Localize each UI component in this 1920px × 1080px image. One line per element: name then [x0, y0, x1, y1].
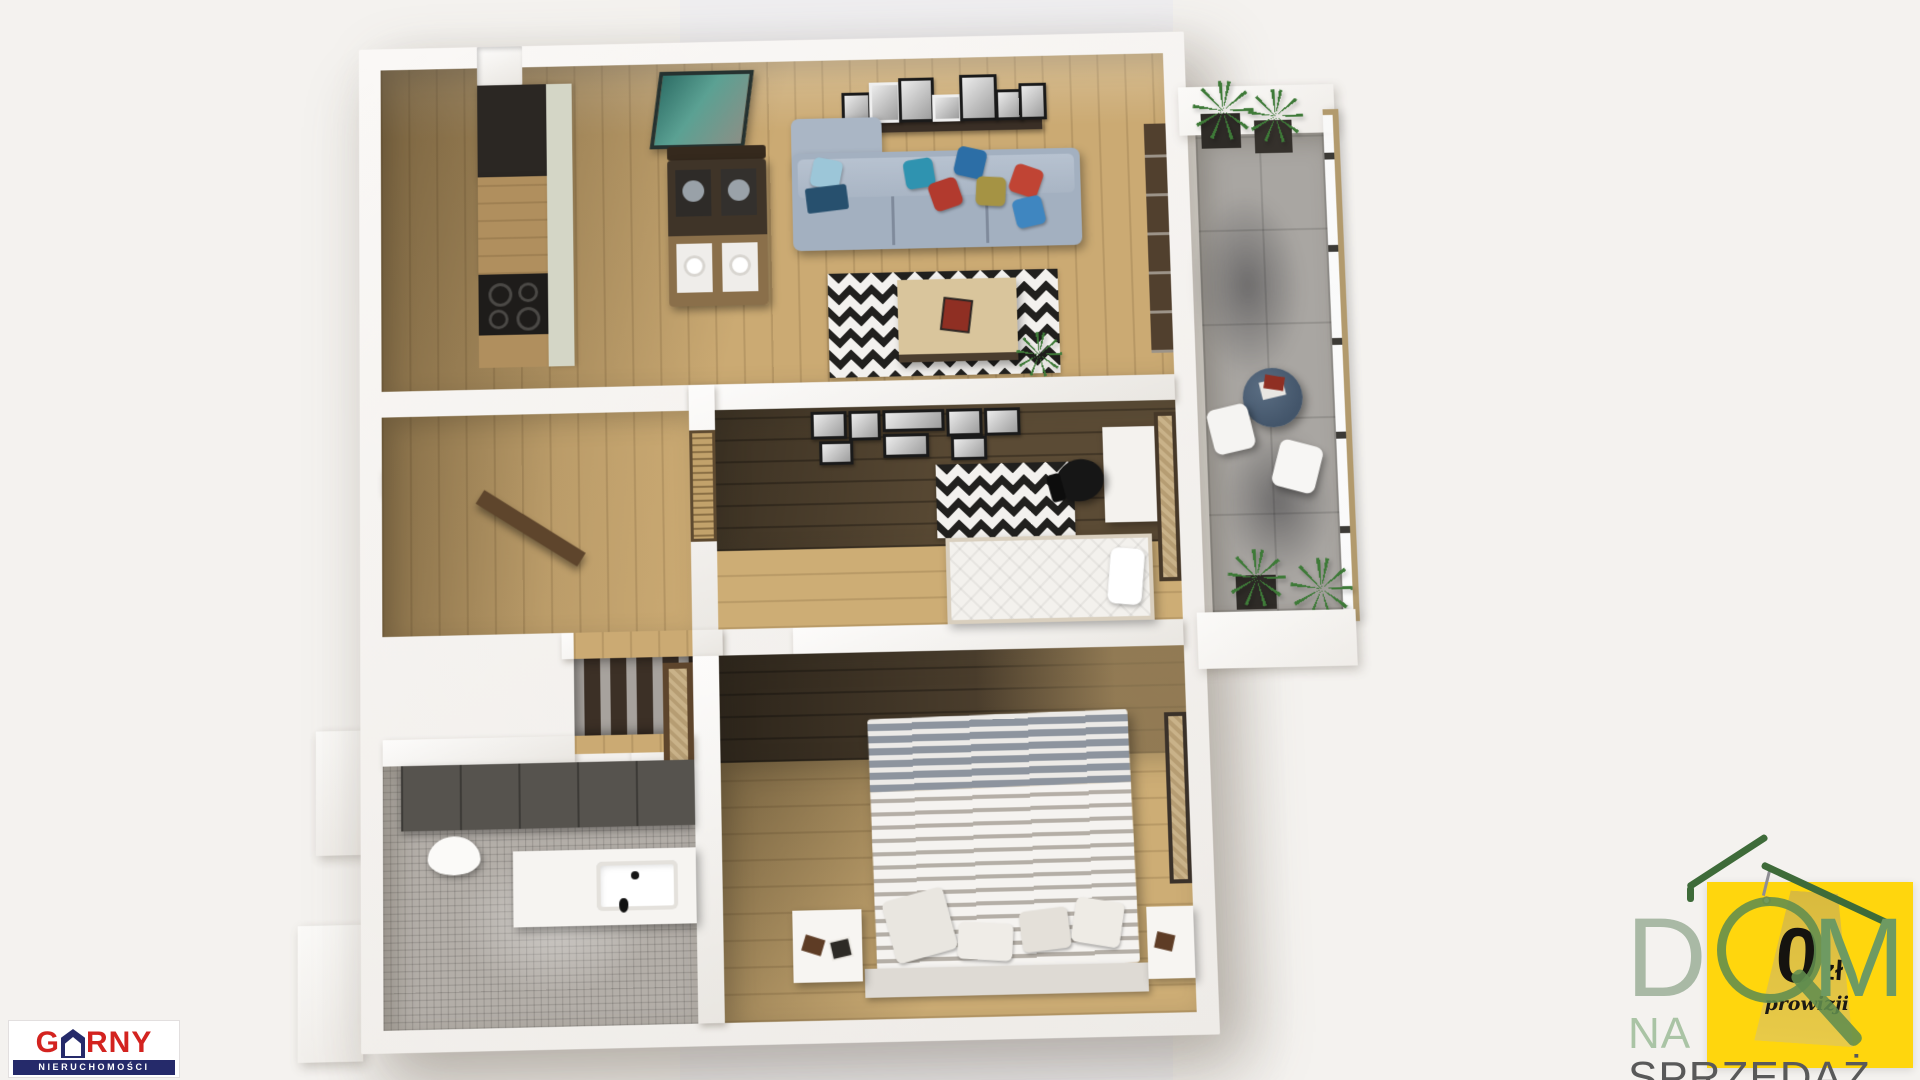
stairwell-annex-upper — [316, 731, 363, 856]
plate — [683, 255, 705, 277]
framed-photo — [1018, 83, 1047, 120]
floor-plan — [329, 27, 1434, 1062]
cushion-blue — [953, 145, 988, 180]
plant-shadow — [1190, 191, 1306, 379]
office-gallery-wall — [811, 407, 1024, 467]
duvet-top-band — [867, 709, 1131, 793]
kitchen-counter-end — [479, 334, 549, 368]
agency-subtitle: NIERUCHOMOŚCI — [13, 1060, 175, 1075]
apartment-slab — [359, 32, 1220, 1055]
office-window-blinds — [689, 430, 717, 542]
gallery-print — [882, 409, 944, 432]
watermark-letter-m: M — [1812, 902, 1905, 1014]
kitchen-tall-cabinet — [477, 84, 547, 177]
shaft-notch — [477, 46, 523, 85]
gallery-print — [819, 441, 853, 466]
bedroom-rattan-window — [1164, 712, 1192, 884]
bed-pillow — [1018, 906, 1072, 953]
place-setting-napkin — [722, 242, 759, 292]
gallery-print — [811, 411, 847, 440]
kitchen-backsplash-wall — [546, 84, 575, 367]
dining-table — [667, 158, 768, 306]
house-icon-inner — [65, 1037, 81, 1056]
coffee-table — [897, 277, 1018, 362]
hob-burner — [488, 283, 512, 307]
washbasin — [596, 860, 678, 911]
house-icon — [61, 1029, 85, 1058]
wall-hung-toilet — [428, 836, 481, 876]
books-stack — [942, 299, 971, 331]
nightstand-left — [792, 909, 863, 983]
gallery-print — [984, 407, 1021, 436]
bathroom-vanity — [513, 847, 697, 927]
plate — [728, 179, 750, 201]
price-tag-string — [1762, 870, 1771, 896]
nightstand-right — [1146, 906, 1195, 979]
gallery-print — [883, 433, 929, 458]
single-bed — [945, 533, 1154, 624]
hob-burner — [518, 282, 538, 302]
hob-burner — [489, 309, 509, 329]
place-setting-mat — [675, 169, 711, 216]
wall-art-teal — [650, 70, 754, 150]
stairwell-annex-lower — [298, 925, 364, 1063]
framed-photo — [898, 77, 935, 122]
place-setting-napkin — [676, 243, 712, 293]
agency-name: G RNY — [36, 1028, 153, 1058]
gallery-print — [951, 436, 988, 461]
agency-logo: G RNY NIERUCHOMOŚCI — [8, 1020, 180, 1078]
gallery-print — [946, 408, 983, 437]
plate — [682, 180, 704, 202]
watermark-line2: NA SPRZEDAŻ — [1628, 1012, 1920, 1080]
gallery-print — [848, 410, 881, 440]
bed-pillow — [957, 922, 1014, 962]
cushion-olive — [975, 176, 1006, 206]
framed-photo — [959, 74, 998, 121]
kitchen-counter — [478, 176, 548, 275]
hob-burner — [516, 307, 540, 331]
rattan-door — [663, 662, 695, 768]
watermark-na: NA — [1628, 1009, 1689, 1058]
office-rattan-window — [1154, 412, 1182, 582]
nightstand-books — [801, 934, 825, 956]
black-vase — [619, 898, 628, 913]
bed-pillow — [1070, 896, 1125, 948]
agency-name-prefix: G — [36, 1028, 60, 1058]
folded-blanket — [805, 184, 849, 214]
single-bed-pillow — [1107, 547, 1145, 606]
bathroom-dark-tile-wall — [401, 760, 695, 832]
plate — [729, 254, 751, 276]
nightstand-books — [1154, 931, 1175, 951]
framed-photo — [932, 94, 962, 122]
nightstand-book — [830, 939, 852, 959]
watermark-letter-d: D — [1626, 902, 1707, 1014]
magazine-red — [1263, 374, 1285, 391]
place-setting-mat — [721, 168, 757, 215]
kitchen-hob — [478, 273, 548, 335]
balcony-wall-bottom — [1197, 609, 1358, 669]
watermark-sprzedaz: SPRZEDAŻ — [1628, 1053, 1871, 1080]
render-canvas: G RNY NIERUCHOMOŚCI 0 zł prowizji D M NA… — [0, 0, 1920, 1080]
agency-name-suffix: RNY — [86, 1028, 152, 1058]
sofa-seat-split — [891, 196, 895, 245]
